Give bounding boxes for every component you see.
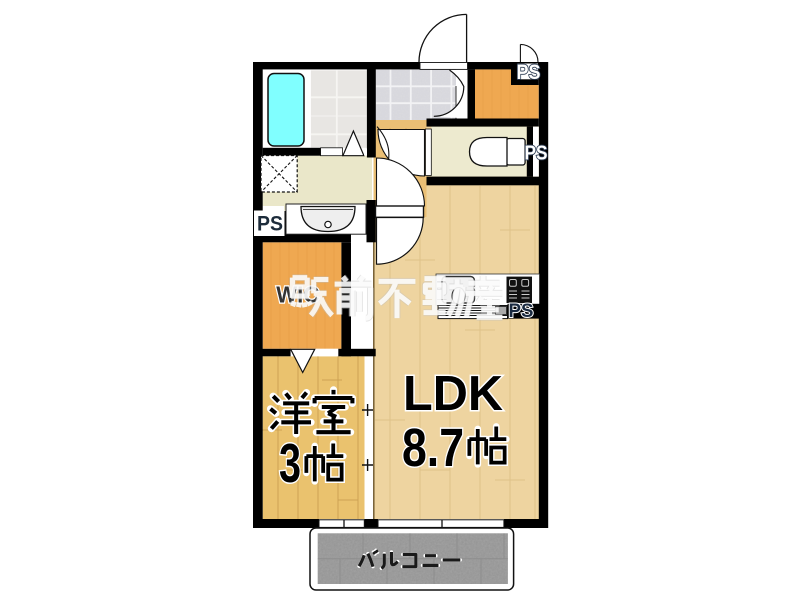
svg-text:8.7: 8.7 (402, 418, 464, 478)
svg-text:PS: PS (525, 143, 548, 165)
svg-text:3: 3 (279, 432, 301, 494)
svg-text:PS: PS (257, 213, 283, 236)
svg-text:PS: PS (517, 61, 541, 84)
svg-text:PS: PS (509, 301, 534, 322)
svg-text:LDK: LDK (403, 367, 503, 421)
